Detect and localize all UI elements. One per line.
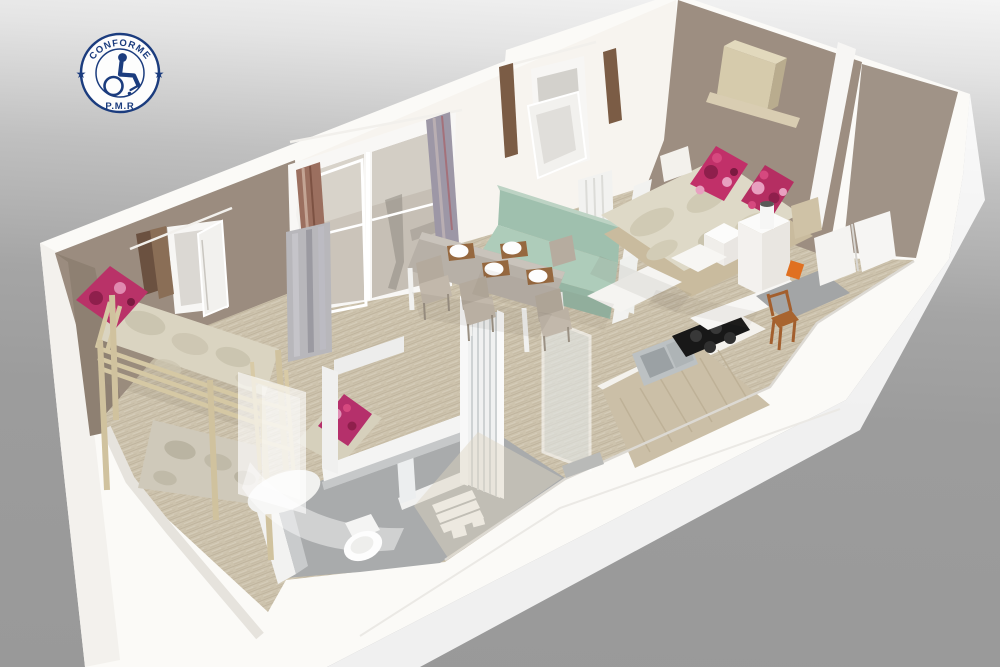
svg-text:P.M.R: P.M.R [105, 101, 134, 112]
svg-text:★: ★ [76, 67, 87, 81]
svg-text:★: ★ [154, 67, 165, 81]
